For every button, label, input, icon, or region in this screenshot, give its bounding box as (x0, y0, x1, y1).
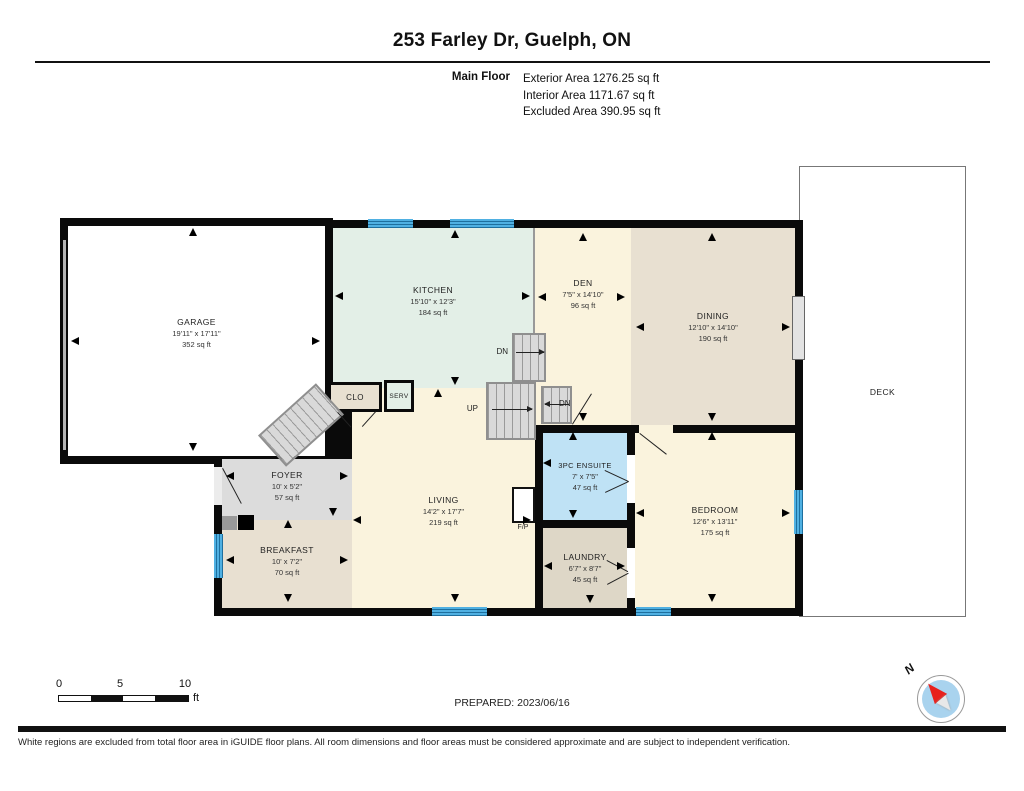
stairs-dn-label: DN (480, 347, 508, 356)
dimension-arrow-left (636, 509, 644, 517)
dimension-arrow-up (579, 233, 587, 241)
dimension-arrow-left (636, 323, 644, 331)
dimension-arrow-right (340, 472, 348, 480)
dimension-arrow-up (451, 230, 459, 238)
ensuite-door-gap (627, 455, 635, 503)
footer-divider (18, 726, 1006, 732)
window (794, 490, 803, 534)
scale-tick-0: 0 (47, 678, 71, 690)
deck-label: DECK (870, 387, 895, 397)
dimension-arrow-down (569, 510, 577, 518)
dimension-arrow-down (586, 595, 594, 603)
window (214, 534, 223, 578)
window (450, 219, 514, 228)
excluded-area: Excluded Area 390.95 sq ft (523, 104, 660, 121)
stairs-up-label: UP (450, 404, 478, 413)
dimension-arrow-down (708, 413, 716, 421)
disclaimer-text: White regions are excluded from total fl… (18, 737, 1008, 748)
foyer-post-black (238, 515, 254, 530)
dimension-arrow-down (284, 594, 292, 602)
window (432, 607, 487, 616)
dimension-arrow-down (189, 443, 197, 451)
floorplan-page: 253 Farley Dr, Guelph, ON Main Floor Ext… (0, 0, 1024, 791)
dimension-arrow-up (708, 432, 716, 440)
deck-slider-door (792, 296, 805, 360)
dimension-arrow-right (617, 293, 625, 301)
scale-tick-10: 10 (173, 678, 197, 690)
room-kitchen: KITCHEN 15'10" x 12'3" 184 sq ft (333, 228, 533, 388)
compass-north-label: N (902, 661, 918, 677)
page-title: 253 Farley Dr, Guelph, ON (0, 30, 1024, 52)
dimension-arrow-down (579, 413, 587, 421)
floor-name-label: Main Floor (360, 71, 510, 83)
dimension-arrow-up (708, 233, 716, 241)
dimension-arrow-left (226, 556, 234, 564)
dimension-arrow-down (451, 377, 459, 385)
dimension-arrow-left (543, 459, 551, 467)
window (368, 219, 413, 228)
dimension-arrow-left (71, 337, 79, 345)
room-ensuite: 3PC ENSUITE 7' x 7'5" 47 sq ft (543, 433, 627, 520)
room-dining: DINING 12'10" x 14'10" 190 sq ft (631, 228, 795, 425)
dimension-arrow-down (329, 508, 337, 516)
dimension-arrow-up (569, 432, 577, 440)
dimension-arrow-right (522, 292, 530, 300)
exterior-area: Exterior Area 1276.25 sq ft (523, 71, 660, 88)
area-stats: Exterior Area 1276.25 sq ft Interior Are… (523, 71, 660, 121)
dimension-arrow-left (544, 562, 552, 570)
stairs-dn2-arrow (545, 404, 569, 405)
stairs-dn-arrow (516, 352, 544, 353)
dimension-arrow-right (312, 337, 320, 345)
room-laundry: LAUNDRY 6'7" x 8'7" 45 sq ft (543, 528, 627, 608)
stairs-down-top (512, 333, 546, 382)
dimension-arrow-up (284, 520, 292, 528)
room-serv: SERV (384, 380, 414, 412)
dimension-arrow-up (189, 228, 197, 236)
dimension-arrow-left (335, 292, 343, 300)
bedroom-door-gap (639, 425, 673, 433)
dimension-arrow-down (451, 594, 459, 602)
fireplace-label: F/P (508, 524, 538, 531)
scale-tick-5: 5 (108, 678, 132, 690)
room-deck: DECK (799, 166, 966, 617)
dimension-arrow-right (782, 323, 790, 331)
prepared-date: PREPARED: 2023/06/16 (0, 697, 1024, 709)
dimension-arrow-left (353, 516, 361, 524)
stairs-up-arrow (492, 409, 532, 410)
dimension-arrow-left (226, 472, 234, 480)
header-divider (35, 61, 990, 63)
dimension-arrow-up (434, 389, 442, 397)
dimension-arrow-right (340, 556, 348, 564)
dimension-arrow-right (523, 516, 531, 524)
dimension-arrow-down (708, 594, 716, 602)
dimension-arrow-left (538, 293, 546, 301)
foyer-post-gray (222, 516, 237, 530)
dimension-arrow-right (617, 562, 625, 570)
entry-door-gap (214, 467, 222, 505)
interior-area: Interior Area 1171.67 sq ft (523, 88, 660, 105)
window (636, 607, 671, 616)
garage-door-track (63, 240, 66, 450)
dimension-arrow-right (782, 509, 790, 517)
room-bedroom: BEDROOM 12'6" x 13'11" 175 sq ft (635, 433, 795, 608)
